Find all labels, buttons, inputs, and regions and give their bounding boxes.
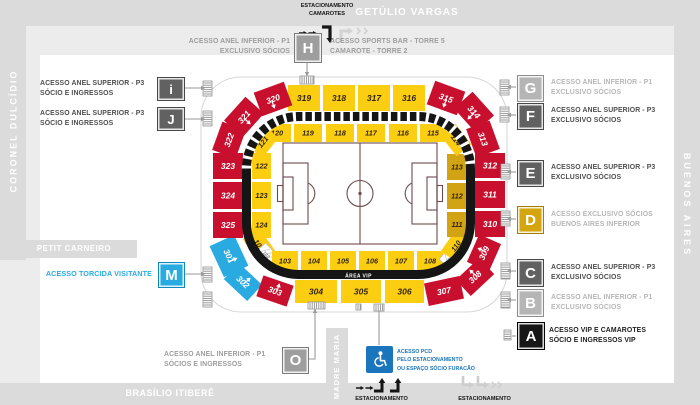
svg-text:316: 316 [402, 93, 416, 103]
svg-text:124: 124 [255, 221, 267, 230]
access-label-h-left: ACESSO ANEL INFERIOR - P1EXCLUSIVO SÓCIO… [150, 37, 290, 56]
access-badge-g[interactable]: G [517, 75, 544, 102]
access-label-c: ACESSO ANEL SUPERIOR - P3EXCLUSIVO SÓCIO… [551, 263, 655, 282]
section-119[interactable]: 119 [294, 124, 322, 142]
pcd-access-label: ACESSO PCDPELO ESTACIONAMENTOOU ESPAÇO S… [397, 348, 475, 373]
parking-camarotes-label: ESTACIONAMENTOCAMAROTES [289, 2, 365, 18]
section-316[interactable]: 316 [393, 85, 425, 111]
access-badge-d[interactable]: D [517, 206, 544, 234]
section-105[interactable]: 105 [330, 251, 356, 271]
section-311[interactable]: 311 [475, 181, 505, 208]
svg-text:123: 123 [255, 191, 267, 200]
svg-text:113: 113 [451, 163, 463, 172]
stadium-access-map: GETÚLIO VARGAS CORONEL DULCÍDIO BUENOS A… [0, 0, 700, 405]
svg-text:112: 112 [451, 192, 463, 201]
access-badge-h[interactable]: H [294, 33, 322, 63]
stairs-icon [500, 107, 509, 122]
access-badge-a[interactable]: A [517, 322, 545, 350]
section-111[interactable]: 111 [447, 212, 467, 237]
access-label-f: ACESSO ANEL SUPERIOR - P3EXCLUSIVO SÓCIO… [551, 106, 655, 125]
access-label-i: ACESSO ANEL SUPERIOR - P3SÓCIO E INGRESS… [40, 79, 144, 98]
svg-text:324: 324 [221, 191, 235, 201]
stairs-icon [203, 267, 212, 282]
soccer-field [278, 143, 443, 244]
section-118[interactable]: 118 [326, 124, 354, 142]
svg-text:304: 304 [309, 287, 323, 297]
area-vip-label: ÁREA VIP [345, 272, 372, 279]
svg-text:106: 106 [366, 257, 379, 266]
stairs-icon [504, 330, 511, 340]
svg-text:105: 105 [337, 257, 350, 266]
parking-icons-left [356, 378, 401, 391]
section-306[interactable]: 306 [385, 280, 424, 303]
parking-label-right: ESTACIONAMENTO [447, 395, 522, 403]
stairs-icon [500, 80, 509, 95]
stairs-icon [203, 111, 212, 126]
section-304[interactable]: 304 [295, 280, 337, 303]
section-106[interactable]: 106 [359, 251, 385, 271]
svg-text:119: 119 [302, 129, 315, 138]
stairs-icon [203, 292, 212, 307]
svg-text:103: 103 [279, 257, 291, 266]
stairs-icon [308, 302, 325, 309]
section-122[interactable]: 122 [252, 153, 271, 179]
section-310[interactable]: 310 [475, 211, 505, 237]
access-badge-e[interactable]: E [517, 160, 544, 187]
svg-text:104: 104 [308, 257, 320, 266]
access-label-o: ACESSO ANEL INFERIOR - P1SÓCIOS E INGRES… [164, 350, 265, 369]
section-117[interactable]: 117 [357, 124, 385, 142]
section-303[interactable]: 303 [256, 275, 293, 306]
access-badge-f[interactable]: F [517, 103, 544, 130]
access-badge-i[interactable]: i [157, 77, 185, 101]
svg-text:325: 325 [221, 220, 235, 230]
svg-text:311: 311 [483, 190, 497, 200]
access-badge-o[interactable]: O [282, 347, 309, 374]
svg-text:310: 310 [483, 219, 497, 229]
access-badge-j[interactable]: J [157, 107, 185, 131]
section-107[interactable]: 107 [388, 251, 414, 271]
section-116[interactable]: 116 [389, 124, 417, 142]
stairs-icon [356, 304, 361, 310]
access-badge-b[interactable]: B [517, 289, 544, 317]
svg-text:319: 319 [297, 93, 311, 103]
svg-text:305: 305 [354, 287, 368, 297]
svg-text:111: 111 [451, 220, 462, 229]
svg-text:107: 107 [395, 257, 408, 266]
access-label-h-right: ACESSO SPORTS BAR - TORRE 5CAMAROTE - TO… [330, 37, 445, 56]
access-label-b: ACESSO ANEL INFERIOR - P1EXCLUSIVO SÓCIO… [551, 293, 652, 312]
access-label-m: ACESSO TORCIDA VISITANTE [20, 269, 152, 279]
stairs-icon [300, 76, 314, 84]
section-324[interactable]: 324 [213, 182, 243, 209]
svg-text:312: 312 [483, 161, 497, 171]
section-318[interactable]: 318 [323, 85, 355, 111]
svg-text:306: 306 [397, 287, 411, 297]
access-label-a: ACESSO VIP E CAMAROTESSÓCIO E INGRESSOS … [549, 326, 646, 345]
access-badge-c[interactable]: C [517, 259, 544, 287]
svg-text:118: 118 [334, 129, 347, 138]
svg-text:116: 116 [397, 129, 410, 138]
parking-icons-right [463, 376, 501, 388]
access-label-g: ACESSO ANEL INFERIOR - P1EXCLUSIVO SÓCIO… [551, 78, 652, 97]
svg-text:122: 122 [255, 162, 267, 171]
section-325[interactable]: 325 [213, 212, 243, 238]
access-label-d: ACESSO EXCLUSIVO SÓCIOSBUENOS AIRES INFE… [551, 210, 653, 229]
section-112[interactable]: 112 [447, 183, 467, 209]
stairs-icon [203, 81, 212, 96]
svg-text:323: 323 [221, 161, 235, 171]
section-323[interactable]: 323 [213, 153, 243, 179]
wheelchair-icon [370, 350, 389, 369]
access-label-j: ACESSO ANEL SUPERIOR - P3SÓCIO E INGRESS… [40, 109, 144, 128]
svg-text:318: 318 [332, 93, 346, 103]
section-124[interactable]: 124 [252, 212, 271, 238]
parking-label-left: ESTACIONAMENTO [344, 395, 419, 403]
svg-text:115: 115 [427, 129, 440, 138]
section-312[interactable]: 312 [475, 153, 505, 178]
access-badge-m[interactable]: M [158, 262, 185, 288]
section-123[interactable]: 123 [252, 182, 271, 209]
section-104[interactable]: 104 [301, 251, 327, 271]
svg-text:117: 117 [365, 129, 378, 138]
section-319[interactable]: 319 [288, 85, 320, 111]
section-113[interactable]: 113 [447, 154, 467, 180]
stairs-icon [374, 304, 384, 311]
svg-text:317: 317 [367, 93, 382, 103]
section-305[interactable]: 305 [341, 280, 381, 303]
svg-text:108: 108 [424, 257, 437, 266]
pcd-access-box[interactable] [366, 346, 393, 373]
section-317[interactable]: 317 [358, 85, 390, 111]
access-label-e: ACESSO ANEL SUPERIOR - P3EXCLUSIVO SÓCIO… [551, 163, 655, 182]
